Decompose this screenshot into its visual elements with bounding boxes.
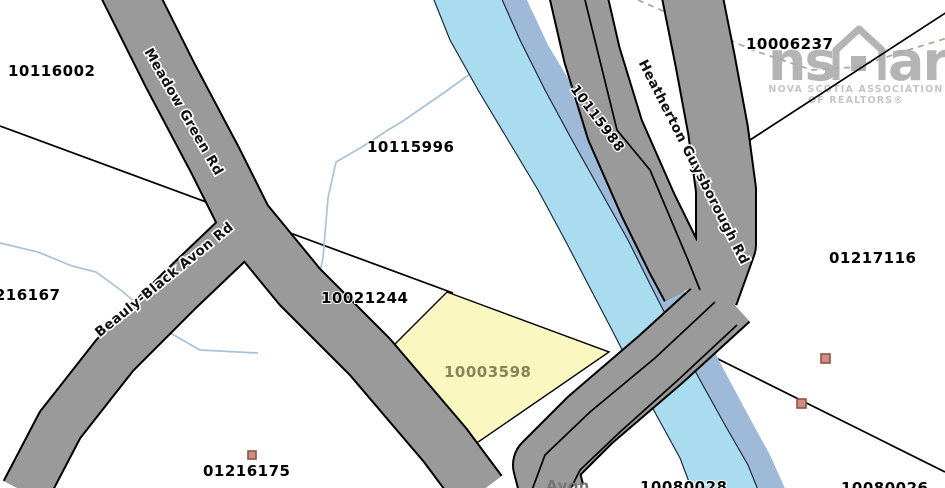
building-square-1 (248, 451, 256, 459)
nsar-watermark-line1: NOVA SCOTIA ASSOCIATION (768, 84, 943, 95)
road-main (125, 0, 480, 488)
parcel-label-10003598: 10003598 (444, 363, 532, 381)
building-square-3 (797, 399, 806, 408)
building-square-2 (821, 354, 830, 363)
map-viewport: ns ar NOVA SCOTIA ASSOCIATION OF REALTOR… (0, 0, 945, 488)
parcel-label-10116002: 10116002 (8, 62, 96, 80)
parcel-label-01216175: 01216175 (203, 462, 291, 480)
road-beauly (25, 230, 243, 488)
nsar-watermark-line2: OF REALTORS® (808, 95, 904, 106)
parcel-label-01217116: 01217116 (829, 249, 917, 267)
parcel-label-10080028: 10080028 (640, 478, 728, 488)
parcel-label-10006237: 10006237 (746, 35, 834, 53)
parcel-label-10021244: 10021244 (321, 289, 409, 307)
nsar-house-icon (836, 29, 882, 80)
parcel-label-01216167: 01216167 (0, 286, 61, 304)
river-name-label: Avon (546, 477, 590, 488)
map-canvas[interactable]: ns ar NOVA SCOTIA ASSOCIATION OF REALTOR… (0, 0, 945, 488)
parcel-label-10080026: 10080026 (841, 479, 929, 488)
parcel-label-10115996: 10115996 (367, 138, 455, 156)
